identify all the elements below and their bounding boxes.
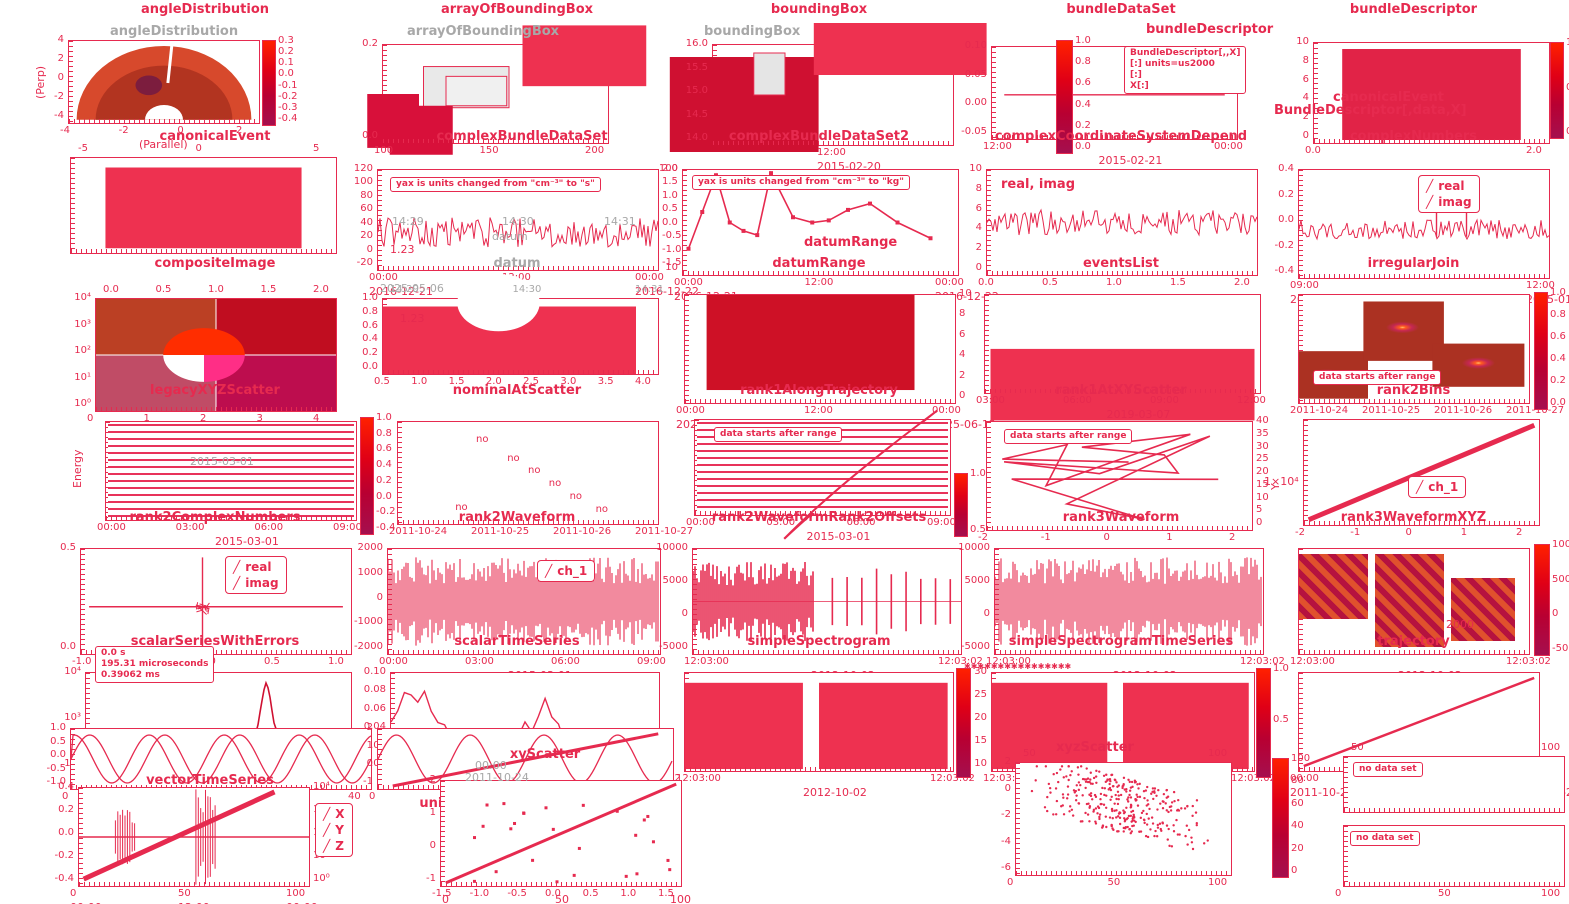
annotation: yax is units changed from "cm⁻³" to "kg"	[692, 175, 910, 190]
axes-simpleSpectrogram	[684, 672, 954, 772]
annotation-line: no data set	[1356, 833, 1414, 844]
overlay-text: 100	[670, 893, 691, 904]
plot-glyph	[69, 41, 259, 123]
axes-vectorTimeSeries	[78, 787, 310, 887]
tick-label: 0.8	[336, 306, 378, 317]
tick-label: 0.00	[945, 97, 987, 108]
tick-label: 0	[646, 608, 688, 619]
overlay-text: 0	[442, 893, 449, 904]
tick-label: 16.0	[666, 38, 708, 49]
overlay-text: 14:31	[604, 215, 636, 228]
panel-title: canonicalEvent	[50, 129, 380, 144]
colorbar-tick-label: -0.2	[278, 91, 298, 102]
tick-label: 120	[331, 163, 373, 174]
colorbar	[1272, 758, 1289, 878]
overlay-text: 2015-03-01	[190, 455, 254, 468]
overlay-text: 1×10⁴	[1264, 475, 1299, 488]
tick-label: 50	[1438, 888, 1451, 899]
colorbar-tick-label: 0.6	[1550, 331, 1566, 342]
tick-label: -0.5	[507, 888, 527, 899]
tick-label: 4	[22, 34, 64, 45]
tick-label: -6	[969, 862, 1011, 873]
nominal-label: no	[549, 478, 561, 489]
annotation: data starts after range	[1004, 429, 1132, 444]
tick-label: 2	[22, 53, 64, 64]
overlay-text: BundleDescriptor[,data,X]	[1274, 103, 1467, 118]
colorbar-tick-label: 0	[1552, 608, 1558, 619]
panel-title: rank2ComplexNumbers	[50, 510, 380, 525]
tick-label: 10⁴	[313, 781, 330, 792]
overlay-text: angleDistribution	[110, 24, 238, 39]
panel-title: rank1AlongTrajectory	[654, 383, 984, 398]
tick-label: 0.6	[336, 320, 378, 331]
overlay-text: 2011-10-24	[465, 771, 529, 784]
tick-label: -0.4	[32, 873, 74, 884]
tick-label: 10	[940, 163, 982, 174]
legend-item: ╱real	[1426, 178, 1472, 194]
overlay-text: 50	[555, 893, 569, 904]
legend-item: ╱imag	[1426, 194, 1472, 210]
tick-label: 100	[636, 163, 678, 174]
panel-title: rank2Bins	[1258, 383, 1569, 398]
tick-label: 0	[196, 143, 202, 154]
tick-label: -1.0	[470, 888, 490, 899]
legend-label: Z	[335, 839, 344, 853]
tick-label: 100	[1208, 748, 1227, 759]
legend-line-icon: ╱	[545, 564, 552, 578]
y-axis-label: Energy	[71, 449, 84, 488]
panel-xyScatter: xyScatter210-1-1.5-1.0-0.50.00.51.01.500…	[380, 745, 710, 904]
tick-label: 0.2	[336, 38, 378, 49]
tick-label: 2	[940, 242, 982, 253]
panel-title: trajectory	[1258, 634, 1569, 649]
tick-label: 0.4	[336, 333, 378, 344]
tick-label: 0	[341, 592, 383, 603]
panel-title: datum	[352, 256, 682, 271]
tick-label: 60	[331, 203, 373, 214]
tick-label: 1000	[341, 567, 383, 578]
panel-title: nominalAtScatter	[352, 383, 682, 398]
tick-label: -1000	[341, 616, 383, 627]
tick-label: 0	[331, 244, 373, 255]
panel-title: legacyXYZScatter	[50, 383, 380, 398]
colorbar-tick-label: 80	[1291, 775, 1304, 786]
striped-series	[108, 424, 354, 518]
tick-label: 2000	[341, 542, 383, 553]
annotation: BundleDescriptor[,,X][:] units=us2000[:]…	[1124, 46, 1246, 94]
tick-label: 0.0	[32, 827, 74, 838]
panel-title: complexBundleDataSet2	[654, 129, 984, 144]
tick-label: 10⁰	[313, 873, 330, 884]
nominal-label: no	[476, 434, 488, 445]
colorbar	[1550, 42, 1564, 139]
panel-title: simpleSpectrogramTimeSeries	[956, 634, 1286, 649]
tick-label: 0.10	[945, 40, 987, 51]
panel-title: complexBundleDataSet	[352, 129, 692, 144]
tick-label: 50	[1351, 742, 1364, 753]
tick-label: 2012-10-02	[803, 786, 867, 799]
plot-glyph	[685, 673, 953, 771]
legend-label: ch_1	[1428, 480, 1458, 494]
tick-label: 0.4	[1252, 163, 1294, 174]
legend-line-icon: ╱	[323, 807, 330, 821]
panel-title: irregularJoin	[1258, 256, 1569, 271]
legend-item: ╱ch_1	[1416, 479, 1458, 495]
panel-title: eventsList	[956, 256, 1286, 271]
plot-glyph	[985, 295, 1260, 393]
colorbar-tick-label: -0.1	[278, 80, 298, 91]
axes-xyzScatter	[1015, 762, 1232, 876]
tick-label: 6	[1267, 74, 1309, 85]
panel-title: datumRange	[654, 256, 984, 271]
legend: ╱ch_1	[1408, 476, 1466, 498]
tick-label: 0.0	[1252, 214, 1294, 225]
colorbar-tick-label: 60	[1291, 798, 1304, 809]
nominal-label: no	[570, 491, 582, 502]
panel-title: complexNumbers	[1258, 129, 1569, 144]
tick-label: 0	[394, 840, 436, 851]
tick-label: 0.5	[156, 284, 172, 295]
panel-empty-panel-2: 050100no data set	[1335, 815, 1569, 901]
tick-label: 20	[331, 230, 373, 241]
colorbar-tick-label: -0.4	[278, 113, 298, 124]
tick-label: 0.2	[1252, 189, 1294, 200]
legend-label: X	[335, 807, 344, 821]
colorbar-tick-label: 20	[1291, 843, 1304, 854]
legend-label: Y	[335, 823, 344, 837]
overlay-text: arrayOfBoundingBox	[407, 24, 559, 39]
tick-label: 0.05	[945, 69, 987, 80]
tick-label: 0	[948, 608, 990, 619]
plot-glyph	[441, 781, 681, 886]
tick-label: 10000	[948, 542, 990, 553]
legend-line-icon: ╱	[1426, 179, 1433, 193]
overlay-text: 2025-05-06	[380, 282, 444, 295]
panel-empty-panel-1: 50100no data set	[1335, 742, 1569, 815]
plot-montage: angleDistribution420-2-4-4-202(Parallel)…	[0, 0, 1569, 904]
tick-label: 0.08	[344, 684, 386, 695]
tick-label: 1.0	[24, 722, 66, 733]
annotation-line: X[:]	[1130, 81, 1240, 92]
colorbar-tick-label: 0.2	[278, 46, 294, 57]
tick-label: -2	[969, 809, 1011, 820]
legend-line-icon: ╱	[323, 839, 330, 853]
tick-label: 0.5	[34, 542, 76, 553]
tick-label: 10000	[646, 542, 688, 553]
legend-label: ch_1	[557, 564, 587, 578]
tick-label: 0.4	[32, 781, 74, 792]
nominal-label: no	[528, 465, 540, 476]
legend-item: ╱ch_1	[545, 563, 587, 579]
legend-line-icon: ╱	[323, 823, 330, 837]
legend-item: ╱X	[323, 806, 345, 822]
tick-label: 0.0	[103, 284, 119, 295]
annotation-line: BundleDescriptor[,,X]	[1130, 48, 1240, 59]
panel-title: complexCoordinateSystemDepend	[956, 129, 1286, 144]
overlay-text: boundingBox	[704, 24, 800, 39]
tick-label: -0.2	[32, 850, 74, 861]
tick-label: 5000	[948, 575, 990, 586]
colorbar-tick-label: 1.0	[1075, 35, 1091, 46]
tick-label: 15.5	[666, 62, 708, 73]
tick-label: 10⁴	[49, 292, 91, 303]
tick-label: 50	[1023, 748, 1036, 759]
axes-xyScatter	[440, 780, 682, 887]
legend-line-icon: ╱	[233, 560, 240, 574]
tick-label: 2	[331, 722, 373, 733]
colorbar-tick-label: 0.0	[278, 68, 294, 79]
tick-label: 40	[331, 217, 373, 228]
overlay-text: real, imag	[1001, 177, 1075, 192]
colorbar-tick-label: 0.4	[1550, 353, 1566, 364]
tick-label: 100	[331, 176, 373, 187]
annotation: no data set	[1350, 831, 1420, 846]
colorbar-tick-label: 5000	[1552, 574, 1569, 585]
tick-label: 5	[313, 143, 319, 154]
tick-label: 6	[940, 203, 982, 214]
annotation-line: yax is units changed from "cm⁻³" to "s"	[396, 179, 595, 190]
panel-title: rank2WaveformRank2Offsets	[654, 510, 984, 525]
hatched-block	[1299, 554, 1368, 619]
legend-item: ╱Z	[323, 838, 345, 854]
colorbar-tick-label: 0.8	[1075, 56, 1091, 67]
overlay-text: datum	[492, 230, 528, 243]
tick-label: 20	[945, 712, 987, 723]
tick-label: 0	[1007, 877, 1013, 888]
tick-label: 5000	[646, 575, 688, 586]
axes-canonicalEvent	[70, 157, 337, 254]
overlay-text: datumRange	[804, 235, 897, 250]
tick-label: 2	[969, 756, 1011, 767]
legend-line-icon: ╱	[233, 576, 240, 590]
y-axis-label: (Perp)	[34, 66, 47, 99]
tick-label: 100	[1541, 742, 1560, 753]
panel-title: simpleSpectrogram	[654, 634, 984, 649]
tick-label: 0	[969, 783, 1011, 794]
overlay-text: 14:30	[502, 215, 534, 228]
plot-glyph	[71, 158, 336, 253]
tick-label: -5	[78, 143, 88, 154]
legend-label: imag	[245, 576, 278, 590]
axes-legacyXYZScatter	[105, 421, 357, 521]
panel-title: boundingBox	[654, 2, 984, 17]
axes-eventsList	[984, 294, 1261, 394]
annotation: yax is units changed from "cm⁻³" to "s"	[390, 177, 601, 192]
tick-label: 14.5	[666, 109, 708, 120]
annotation-line: yax is units changed from "cm⁻³" to "kg"	[698, 177, 904, 188]
colorbar	[262, 40, 276, 126]
tick-label: 1.0	[208, 284, 224, 295]
colorbar-tick-label: 0.4	[1075, 99, 1091, 110]
panel-vectorTimeSeries: vectorTimeSeries0.40.20.0-0.2-0.410⁴10³1…	[50, 745, 370, 904]
annotation-line: 195.31 microseconds	[101, 659, 208, 670]
colorbar-tick-label: 0	[1291, 865, 1297, 876]
panel-title: arrayOfBoundingBox	[352, 2, 682, 17]
tick-label: 0	[70, 888, 76, 899]
legend-label: imag	[1438, 195, 1471, 209]
legend-label: real	[245, 560, 271, 574]
tick-label: 14:30	[513, 284, 542, 295]
tick-label: 50	[178, 888, 191, 899]
tick-label: 15.0	[666, 85, 708, 96]
annotation-line: [:] units=us2000	[1130, 59, 1240, 70]
panel-title: bundleDescriptor	[1258, 2, 1569, 17]
tick-label: 8	[1267, 55, 1309, 66]
colorbar-tick-label: 0.6	[1075, 77, 1091, 88]
legend-line-icon: ╱	[1416, 480, 1423, 494]
plot-glyph	[79, 788, 309, 886]
annotation-line: [:]	[1130, 70, 1240, 81]
colorbar-tick-label: 0.1	[278, 57, 294, 68]
tick-label: 25	[945, 689, 987, 700]
panel-title: xyScatter	[380, 747, 710, 762]
tick-label: 8	[940, 183, 982, 194]
tick-label: 4	[1267, 92, 1309, 103]
panel-title: compositeImage	[50, 256, 380, 271]
tick-label: 2	[394, 774, 436, 785]
legend: ╱real╱imag	[1418, 175, 1480, 213]
overlay-text: 1.23	[400, 312, 425, 325]
tick-label: -0.2	[1252, 240, 1294, 251]
overlay-text: 14:29	[392, 215, 424, 228]
colorbar-tick-label: 100	[1291, 753, 1310, 764]
tick-label: 0.2	[336, 347, 378, 358]
panel-title: scalarTimeSeries	[352, 634, 682, 649]
tick-label: 1	[394, 807, 436, 818]
tick-label: 50	[1108, 877, 1121, 888]
plot-glyph	[383, 299, 658, 374]
tick-label: -4	[969, 836, 1011, 847]
tick-label: 1.5	[261, 284, 277, 295]
tick-label: 1.0	[620, 888, 636, 899]
tick-label: 2.0	[313, 284, 329, 295]
panel-title: bundleDataSet	[956, 2, 1286, 17]
tick-label: 0	[1335, 888, 1341, 899]
legend-item: ╱real	[233, 559, 279, 575]
plot-glyph	[1016, 763, 1231, 875]
colorbar-tick-label: 1.0	[1550, 287, 1566, 298]
panel-title: rank3WaveformXYZ	[1258, 510, 1569, 525]
nominal-label: no	[507, 453, 519, 464]
legend: ╱ch_1	[537, 560, 595, 582]
tick-label: 100	[1208, 877, 1227, 888]
colorbar-tick-label: 0.3	[278, 35, 294, 46]
tick-label: 100	[1541, 888, 1560, 899]
panel-xyzScatter: xyzScatter20-2-4-65010005010010080604020…	[920, 738, 1270, 902]
tick-label: 10²	[49, 345, 91, 356]
annotation-line: data starts after range	[1010, 431, 1126, 442]
tick-label: 0.2	[32, 804, 74, 815]
colorbar-tick-label: 10000	[1552, 539, 1569, 550]
colorbar-tick-label: -0.3	[278, 102, 298, 113]
tick-label: 0.0	[336, 361, 378, 372]
axes-angleDistribution	[68, 40, 260, 124]
tick-label: 1.0	[336, 292, 378, 303]
annotation-line: 0.39062 ms	[101, 670, 208, 681]
panel-title: rank3Waveform	[956, 510, 1286, 525]
legend: ╱real╱imag	[225, 556, 287, 594]
legend-item: ╱imag	[233, 575, 279, 591]
annotation-line: no data set	[1359, 764, 1417, 775]
panel-title: angleDistribution	[50, 2, 360, 17]
tick-label: 100	[286, 888, 305, 899]
panel-title: rank1AtXYScatter	[956, 383, 1286, 398]
tick-label: 0.10	[344, 666, 386, 677]
colorbar-tick-label: 0.8	[1550, 309, 1566, 320]
axes-datum	[382, 298, 659, 375]
tick-label: 10⁴	[39, 666, 81, 677]
legend-label: real	[1438, 179, 1464, 193]
legend: ╱X╱Y╱Z	[315, 803, 353, 857]
panel-title: rank2Waveform	[352, 510, 682, 525]
tick-label: -4	[22, 110, 64, 121]
tick-label: 10³	[49, 319, 91, 330]
overlay-text: 2000	[1446, 618, 1474, 631]
tick-label: 80	[331, 190, 373, 201]
tick-label: 4	[940, 222, 982, 233]
annotation: data starts after range	[714, 427, 842, 442]
overlay-text: bundleDescriptor	[1146, 22, 1273, 37]
tick-label: 0.5	[583, 888, 599, 899]
legend-line-icon: ╱	[1426, 195, 1433, 209]
overlay-text: ✱✱✱✱✱✱✱✱✱✱✱✱✱✱✱✱	[964, 662, 1071, 671]
annotation-line: 0.0 s	[101, 648, 208, 659]
annotation-line: data starts after range	[720, 429, 836, 440]
annotation: 0.0 s195.31 microseconds0.39062 ms	[95, 646, 214, 683]
tick-label: -1	[394, 873, 436, 884]
legend-item: ╱Y	[323, 822, 345, 838]
colorbar-tick-label: 40	[1291, 820, 1304, 831]
annotation: no data set	[1353, 762, 1423, 777]
tick-label: 10	[1267, 36, 1309, 47]
